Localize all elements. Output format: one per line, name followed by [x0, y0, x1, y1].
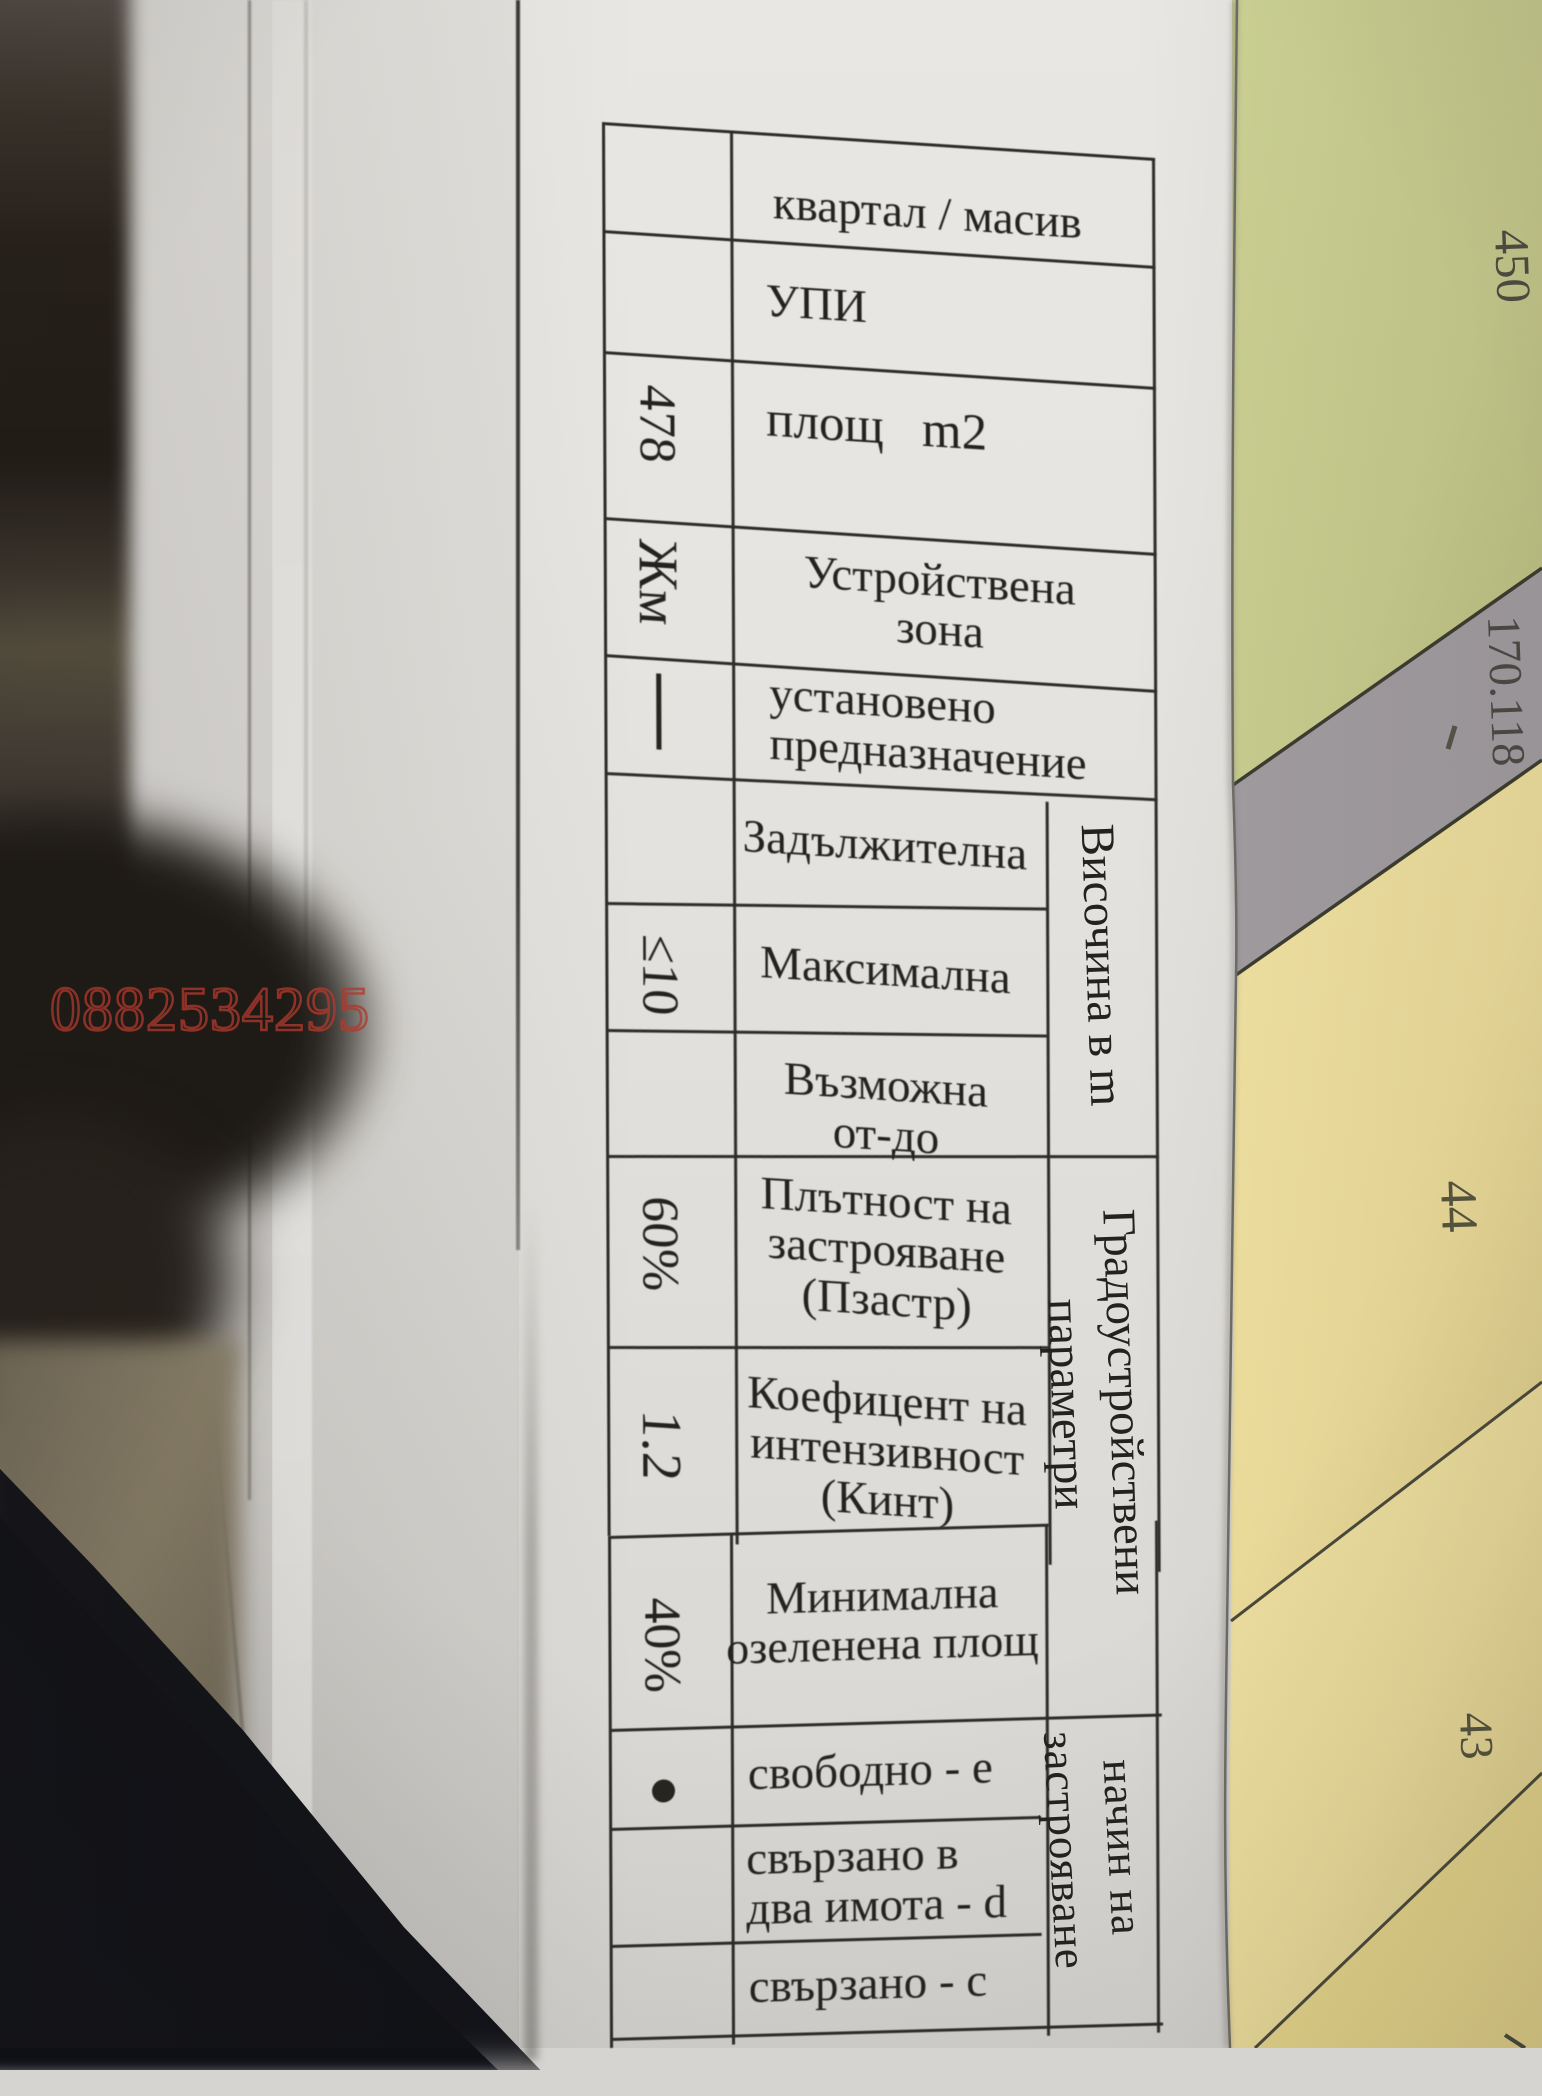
- svg-text:450: 450: [1484, 228, 1542, 303]
- svg-text:170.118: 170.118: [1477, 615, 1534, 768]
- svg-text:43: 43: [1449, 1712, 1503, 1761]
- svg-text:44: 44: [1429, 1179, 1488, 1233]
